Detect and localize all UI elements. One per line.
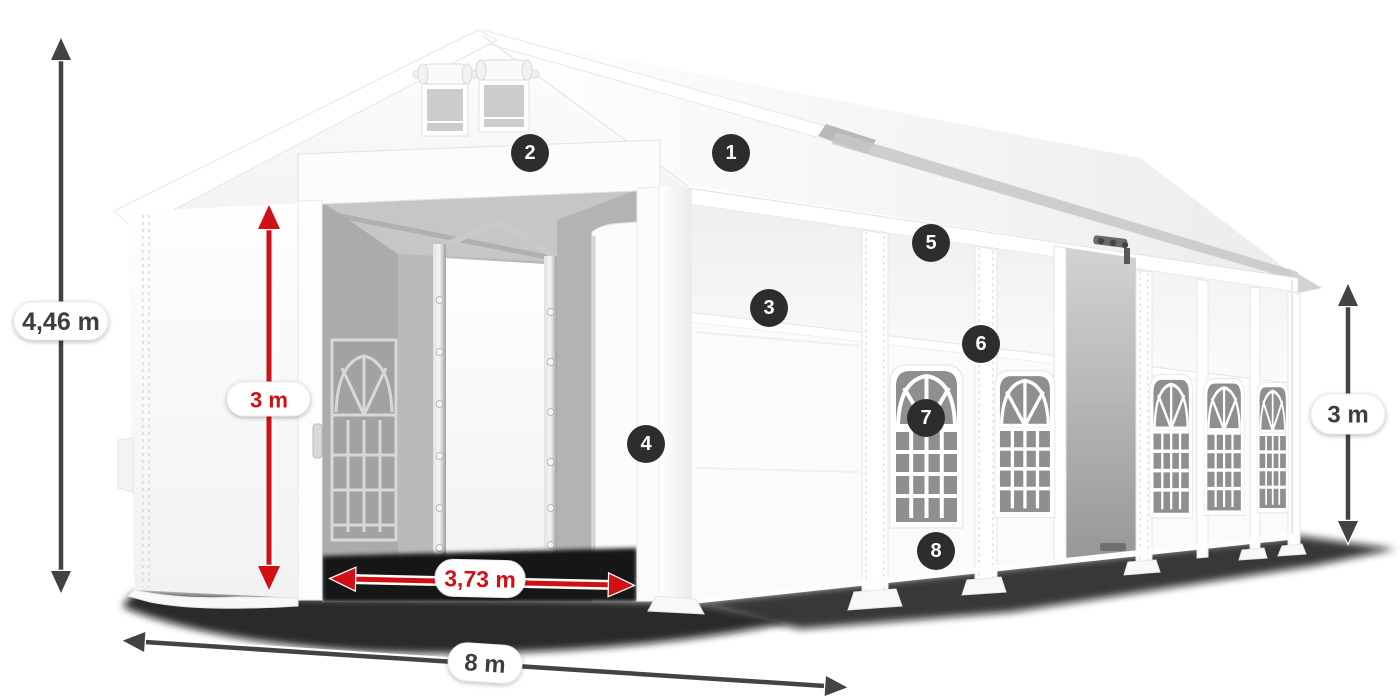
side-door-interior xyxy=(1062,247,1136,562)
entrance-height-label: 3 m xyxy=(250,388,288,413)
entrance-width-label: 3,73 m xyxy=(444,565,516,593)
dimension-side-height: 3 m xyxy=(1311,284,1385,543)
inner-frame-pole xyxy=(433,244,446,588)
corner-skirt xyxy=(648,596,704,614)
marker-2[interactable]: 2 xyxy=(511,134,549,172)
arched-window xyxy=(1204,379,1244,516)
entrance-right-pillar xyxy=(637,187,660,601)
pass-through-view xyxy=(446,258,545,588)
arrowhead-down xyxy=(51,571,71,593)
side-door-floor-roller xyxy=(1100,543,1126,551)
arrowhead-left xyxy=(122,631,145,652)
tent-dimensions-illustration: 1 2 3 4 5 6 7 8 xyxy=(0,0,1400,700)
marker-label: 4 xyxy=(640,433,652,455)
arrowhead-up xyxy=(51,38,71,60)
marker-8[interactable]: 8 xyxy=(917,532,955,570)
gable-window-glass xyxy=(427,89,463,131)
arched-window xyxy=(1257,382,1288,512)
interior-window xyxy=(332,340,396,540)
arrowhead-down xyxy=(1338,521,1358,543)
open-door-leaf xyxy=(592,222,638,602)
arrowhead-up xyxy=(1338,284,1358,306)
corner-post xyxy=(660,186,692,604)
total-height-label: 4,46 m xyxy=(22,308,100,336)
gable-window-glass xyxy=(484,85,524,127)
marker-6[interactable]: 6 xyxy=(962,325,1000,363)
marker-label: 5 xyxy=(925,232,936,254)
arched-window xyxy=(995,371,1055,518)
side-door-edge xyxy=(1054,246,1066,564)
arched-window xyxy=(1150,375,1192,518)
side-door-opening xyxy=(1054,235,1136,564)
tent-diagram-canvas: 1 2 3 4 5 6 7 8 xyxy=(0,0,1400,700)
marker-4[interactable]: 4 xyxy=(627,425,665,463)
front-width-label: 8 m xyxy=(463,649,506,679)
marker-label: 2 xyxy=(524,142,535,164)
marker-5[interactable]: 5 xyxy=(912,224,950,262)
door-handle xyxy=(313,424,322,458)
dimension-total-height: 4,46 m xyxy=(14,38,108,593)
side-height-label: 3 m xyxy=(1327,402,1368,429)
arrowhead-right xyxy=(825,676,848,697)
marker-label: 8 xyxy=(930,540,941,562)
marker-1[interactable]: 1 xyxy=(712,134,750,172)
inner-frame-pole xyxy=(544,256,557,586)
marker-7[interactable]: 7 xyxy=(907,399,945,437)
marker-label: 7 xyxy=(920,407,931,429)
marker-label: 6 xyxy=(975,333,986,355)
marker-label: 1 xyxy=(725,142,736,164)
marker-3[interactable]: 3 xyxy=(750,289,788,327)
front-entrance-interior xyxy=(322,188,638,602)
arched-window xyxy=(890,365,963,528)
marker-label: 3 xyxy=(763,297,774,319)
wall-flap xyxy=(118,438,133,492)
